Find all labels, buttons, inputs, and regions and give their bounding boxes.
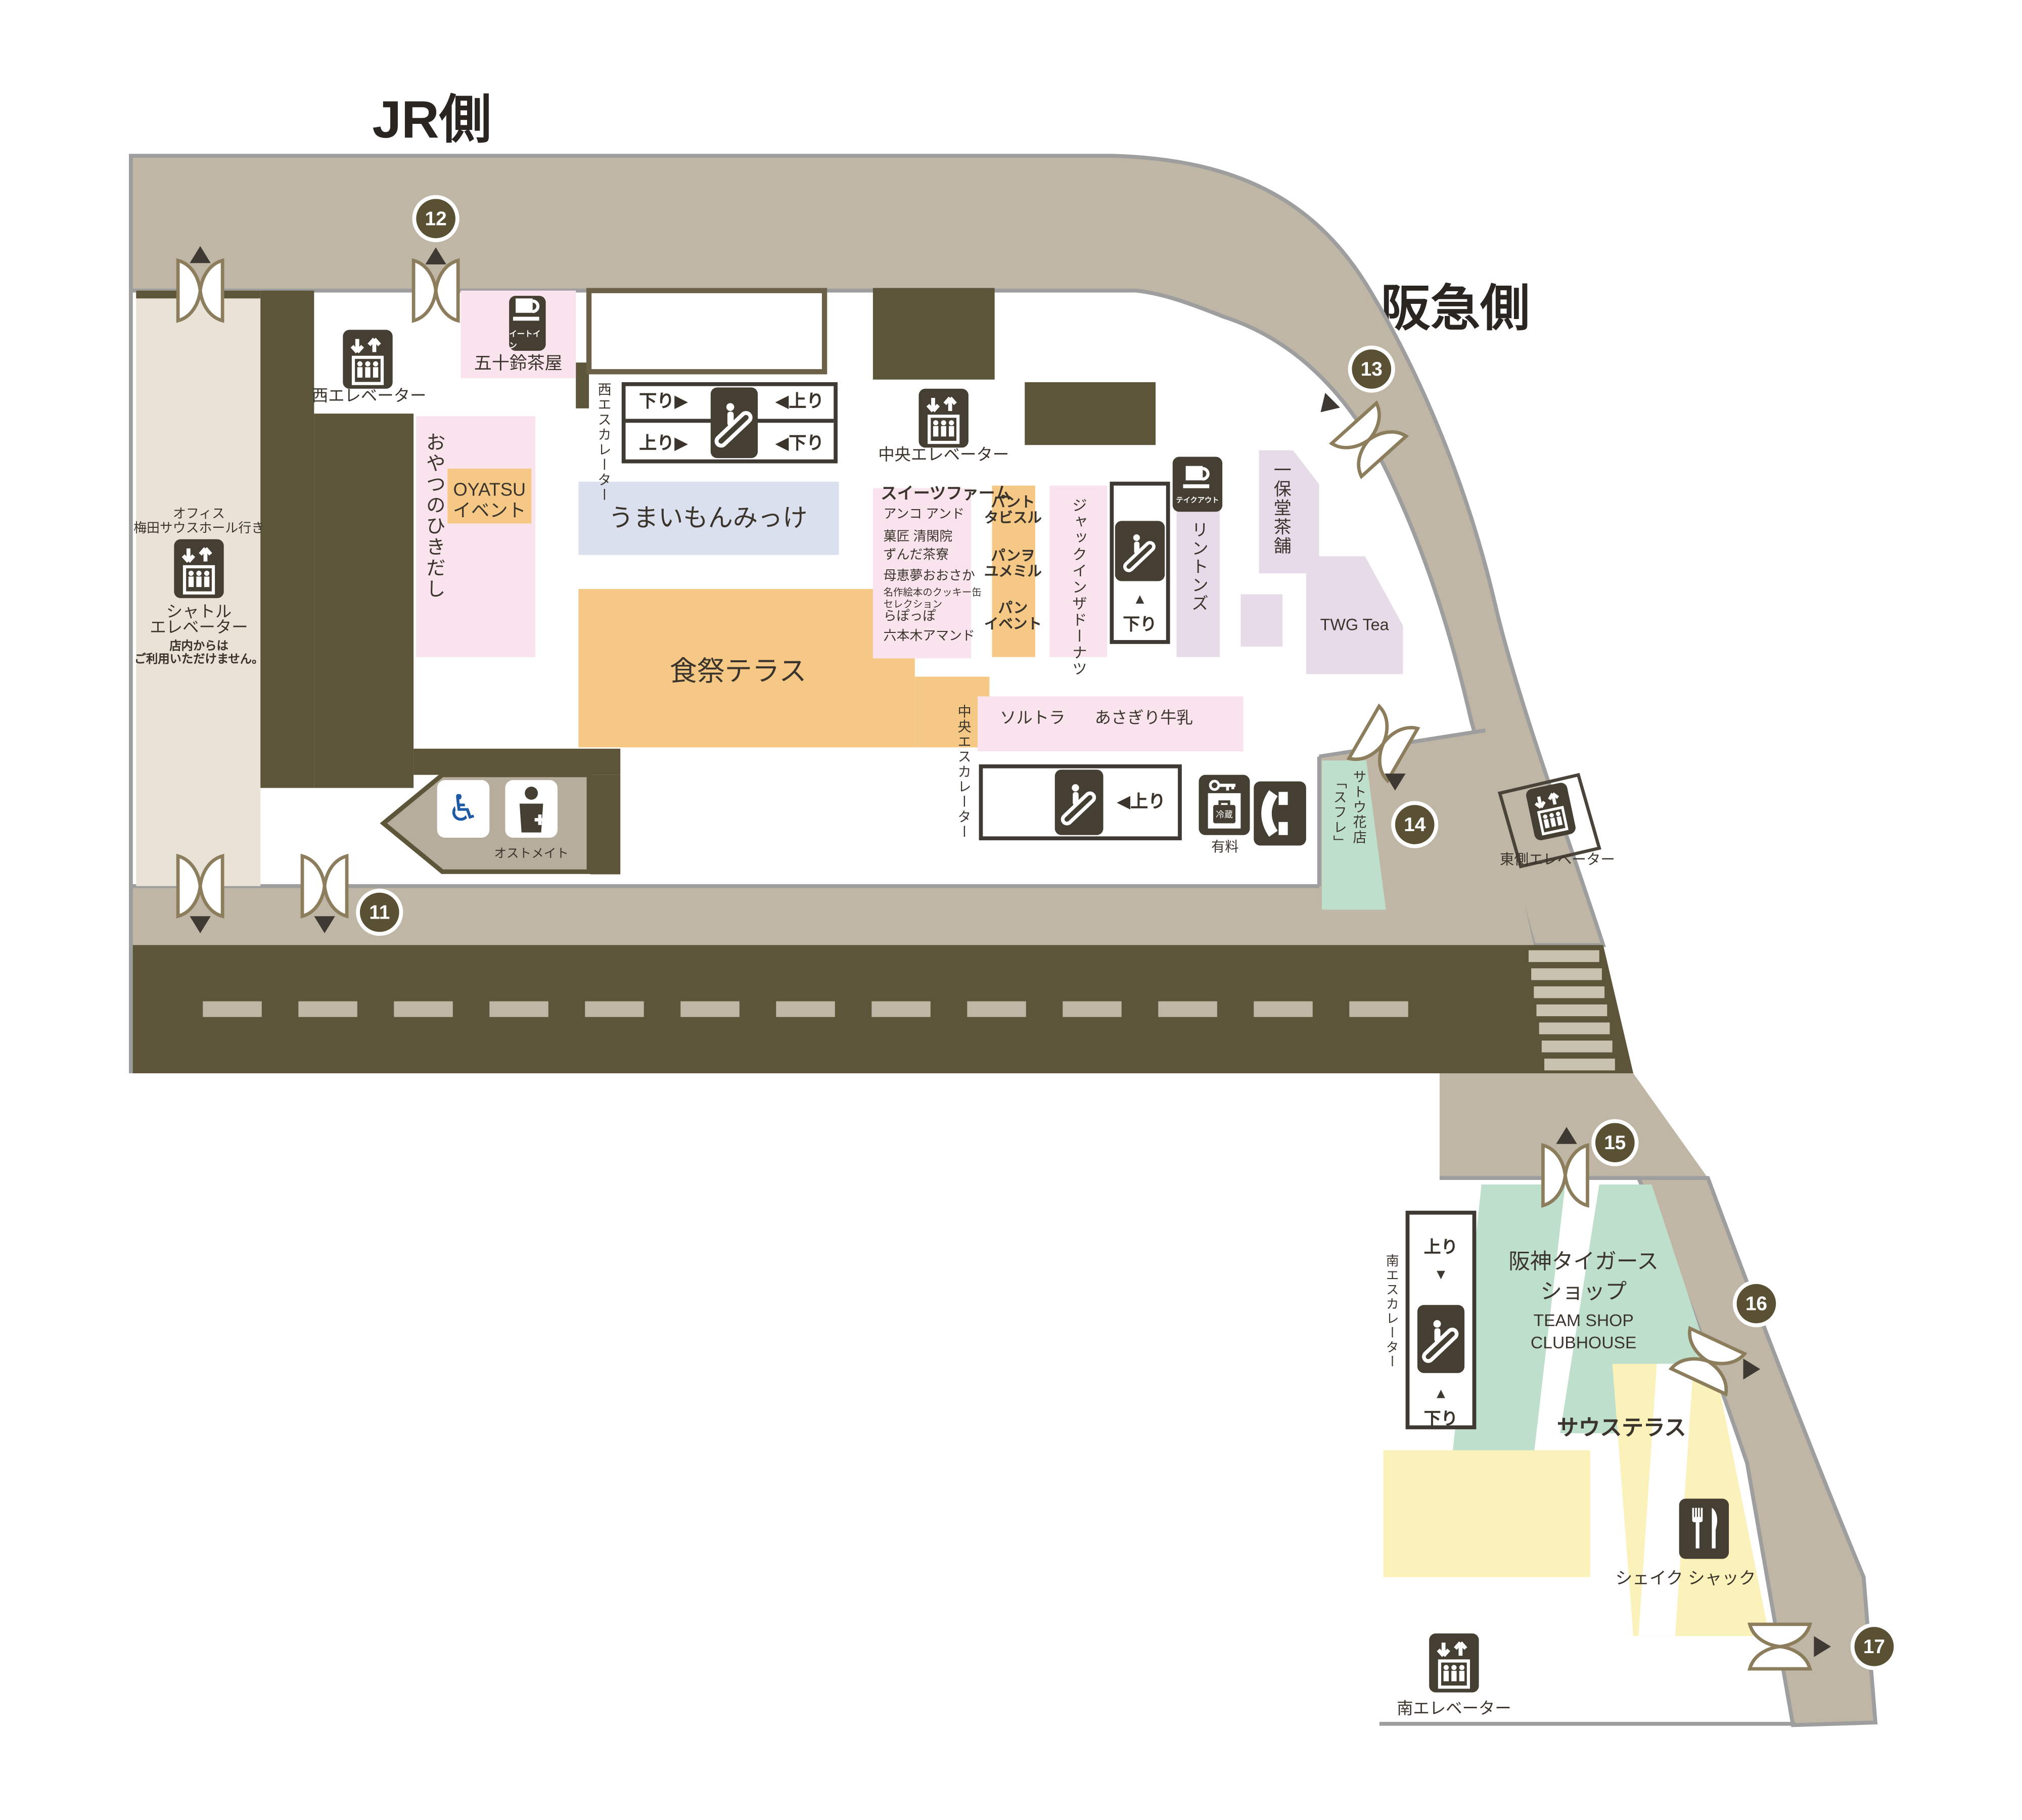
jack-label: ジャックインザドーナツ (1068, 497, 1089, 677)
restaurant-icon (1679, 1498, 1729, 1559)
west-esc-row2-left: 上り▶ (639, 434, 688, 453)
central-escalator-label: 中央エスカレーター (955, 704, 975, 840)
bread-line-3: パンヲ (991, 550, 1035, 565)
entrance-badge-17: 17 (1851, 1623, 1898, 1670)
bread-line-2: タビスル (984, 512, 1042, 527)
south-elevator-icon (1429, 1633, 1479, 1693)
entrance-badge-15: 15 (1591, 1119, 1638, 1166)
sweets-item-5a: 名作絵本のクッキー缶 (884, 587, 982, 598)
west-elevator-label: 西エレベーター (312, 388, 427, 405)
south-escalator-icon (1417, 1305, 1464, 1373)
entrance-badge-16: 16 (1733, 1280, 1780, 1327)
bread-line-5: パン (998, 603, 1028, 618)
ippodo-label: 一保堂茶舗 (1267, 461, 1293, 556)
south-escalator-label: 南エスカレーター (1380, 1254, 1400, 1369)
central-down-arrow-icon: ▲ (1133, 593, 1147, 608)
central-down-escalator-icon (1115, 521, 1165, 581)
sweets-item-5b: セレクション (884, 600, 943, 610)
locker-cold-label: 冷蔵 (1216, 810, 1233, 820)
shuttle-dest-line2: 梅田サウスホール行き (133, 523, 264, 537)
bread-line-1: パント (991, 496, 1035, 512)
asagiri-label: あさぎり牛乳 (1095, 710, 1193, 727)
tigers-label-line3: TEAM SHOP (1534, 1312, 1634, 1330)
south-esc-up-label: 上り (1424, 1239, 1458, 1256)
lavender-kiosk (1240, 594, 1282, 647)
central-down-label: 下り (1123, 615, 1157, 633)
locker-paid-label: 有料 (1211, 841, 1238, 855)
entrance-badge-14: 14 (1391, 801, 1438, 848)
south-esc-down-arrow-icon: ▲ (1434, 1388, 1448, 1403)
entrance-badge-12: 12 (412, 195, 459, 242)
entrance-badge-11: 11 (356, 889, 403, 936)
ostomate-label: オストメイト (494, 848, 569, 861)
west-elevator-icon (343, 330, 392, 389)
central-up-escalator-icon (1055, 769, 1104, 835)
ostomate-icon (505, 780, 558, 838)
south-elevator-label: 南エレベーター (1397, 1701, 1511, 1718)
south-terrace-yellow-1 (1384, 1450, 1590, 1577)
twg-area (1306, 556, 1403, 674)
shop-isuzu-label: 五十鈴茶屋 (474, 354, 563, 373)
shokusai-label: 食祭テラス (670, 658, 807, 687)
takeout-icon: テイクアウト (1173, 457, 1222, 512)
umaimon-label: うまいもんみっけ (609, 507, 808, 533)
event-room (589, 291, 824, 372)
sato-label-line2: 「スフレ」 (1330, 775, 1350, 850)
sato-label-line1: サトウ花店 (1350, 769, 1370, 845)
west-esc-row2-right: ◀下り (775, 434, 824, 453)
public-phone-icon (1254, 782, 1306, 846)
oyatsu-event-line1: OYATSU (453, 480, 526, 499)
sweets-item-1: アンコ アンド (884, 509, 964, 523)
east-elevator-label: 東側エレベーター (1500, 854, 1615, 869)
west-escalator-icon (711, 387, 758, 458)
tigers-label-line2: ショップ (1540, 1282, 1627, 1305)
shop-oyatsu-label: おやつのひきだし (421, 432, 448, 599)
shake-shack-label: シェイク シャック (1616, 1570, 1756, 1587)
bread-line-6: イベント (984, 618, 1042, 633)
shuttle-note-line2: ご利用いただけません。 (134, 654, 264, 666)
rintons-label: リントンズ (1186, 521, 1211, 612)
shuttle-name-line2: エレベーター (150, 620, 248, 637)
tigers-label-line1: 阪神タイガース (1508, 1252, 1659, 1275)
west-esc-row1-left: 下り▶ (639, 392, 688, 411)
south-esc-up-arrow-icon: ▼ (1434, 1268, 1448, 1284)
eat-in-label: イートイン (509, 327, 545, 351)
coin-locker-icon: 冷蔵 (1199, 775, 1250, 835)
central-elevator-icon (918, 389, 968, 448)
sweets-item-2: 菓匠 清閑院 (884, 531, 953, 545)
entrance-badge-13: 13 (1348, 345, 1395, 392)
west-esc-row1-right: ◀上り (775, 392, 824, 411)
central-up-label: ◀上り (1117, 793, 1166, 812)
central-elevator-label: 中央エレベーター (878, 447, 1009, 464)
shuttle-dest-line1: オフィス (173, 509, 225, 522)
oyatsu-event-line2: イベント (453, 501, 526, 520)
sweets-item-7: 六本木アマンド (884, 631, 975, 645)
sweets-item-3: ずんだ茶寮 (884, 550, 949, 563)
west-escalator-label: 西エスカレーター (595, 382, 615, 503)
twg-label: TWG Tea (1320, 617, 1389, 634)
takeout-label: テイクアウト (1176, 495, 1219, 506)
soltra-label: ソルトラ (1000, 710, 1065, 727)
bread-line-4: ユメミル (984, 566, 1042, 581)
floor-map: JR側 阪急側 11 12 13 14 15 16 17 西エレベーター オフィ… (0, 0, 2022, 1819)
south-esc-down-label: 下り (1424, 1410, 1458, 1428)
south-terrace-label: サウステラス (1557, 1418, 1686, 1441)
shuttle-elevator-icon (174, 539, 223, 599)
tigers-label-line4: CLUBHOUSE (1531, 1334, 1637, 1352)
shuttle-note-line1: 店内からは (169, 641, 228, 653)
wheelchair-icon: ♿ (437, 780, 490, 838)
sweets-item-4: 母恵夢おおさか (884, 571, 975, 584)
eat-in-icon: イートイン (509, 296, 545, 351)
sweets-item-6: らぽっぽ (884, 611, 936, 625)
